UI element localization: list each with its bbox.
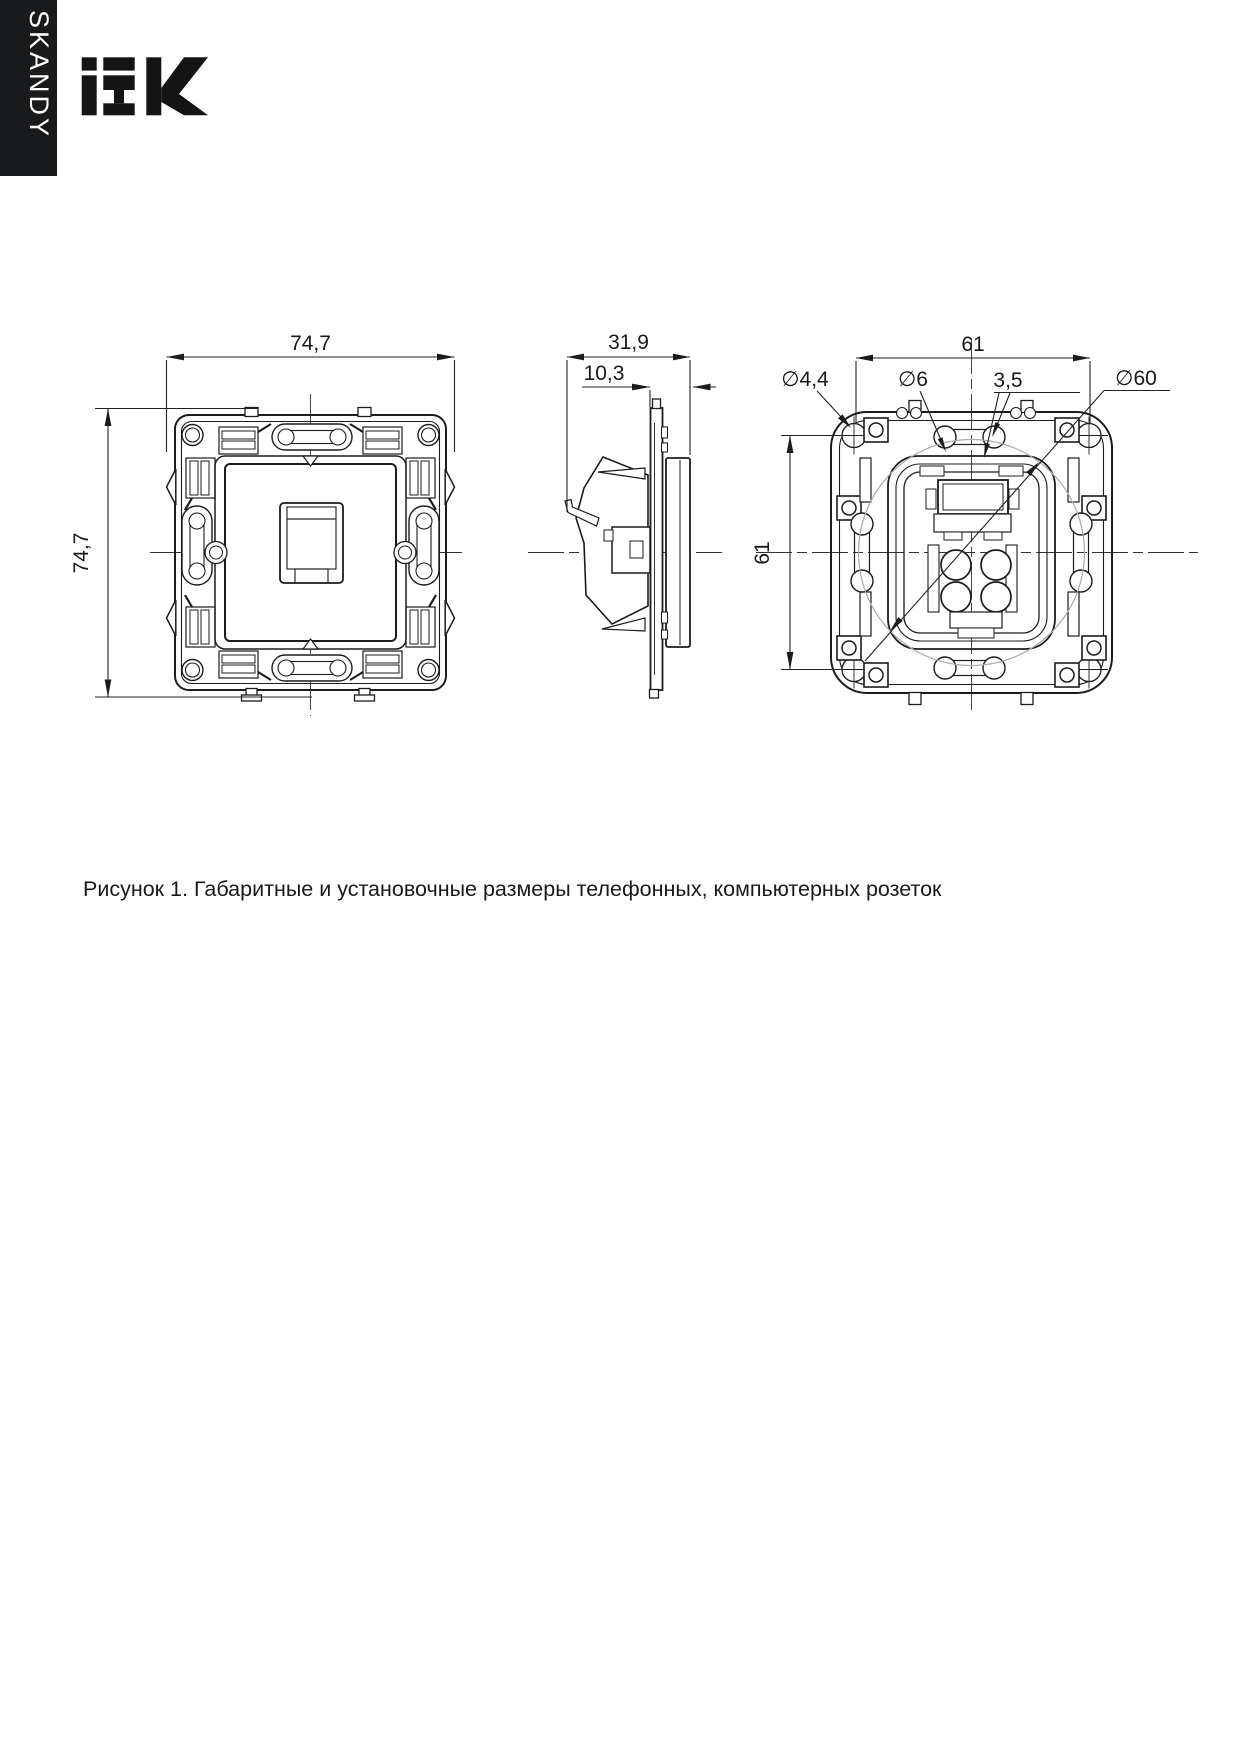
- dimension-drawings: 74,7 74,7: [0, 0, 1239, 1020]
- back-view-drawing: 61 61 ∅4,4 ∅6 3,5: [751, 333, 1198, 714]
- dim-side-depth: 31,9: [608, 331, 649, 354]
- dim-back-width: 61: [961, 333, 984, 356]
- dim-back-mounting-dia: ∅60: [1115, 367, 1157, 390]
- document-page: SKANDY: [0, 0, 1239, 1746]
- front-view-drawing: 74,7 74,7: [70, 332, 462, 716]
- dim-back-screw-hole: ∅4,4: [781, 368, 829, 391]
- dim-front-width: 74,7: [290, 332, 331, 355]
- side-view-drawing: 31,9 10,3: [528, 331, 722, 698]
- side-mechanism: [565, 457, 650, 631]
- dim-front-height: 74,7: [70, 533, 93, 574]
- dim-back-slot-hole: ∅6: [898, 368, 928, 391]
- dim-back-height: 61: [751, 541, 774, 564]
- dim-back-slot-width: 3,5: [993, 369, 1022, 392]
- dim-side-front-depth: 10,3: [584, 362, 625, 385]
- figure-caption: Рисунок 1. Габаритные и установочные раз…: [83, 876, 1183, 902]
- front-rj45-socket: [280, 503, 343, 583]
